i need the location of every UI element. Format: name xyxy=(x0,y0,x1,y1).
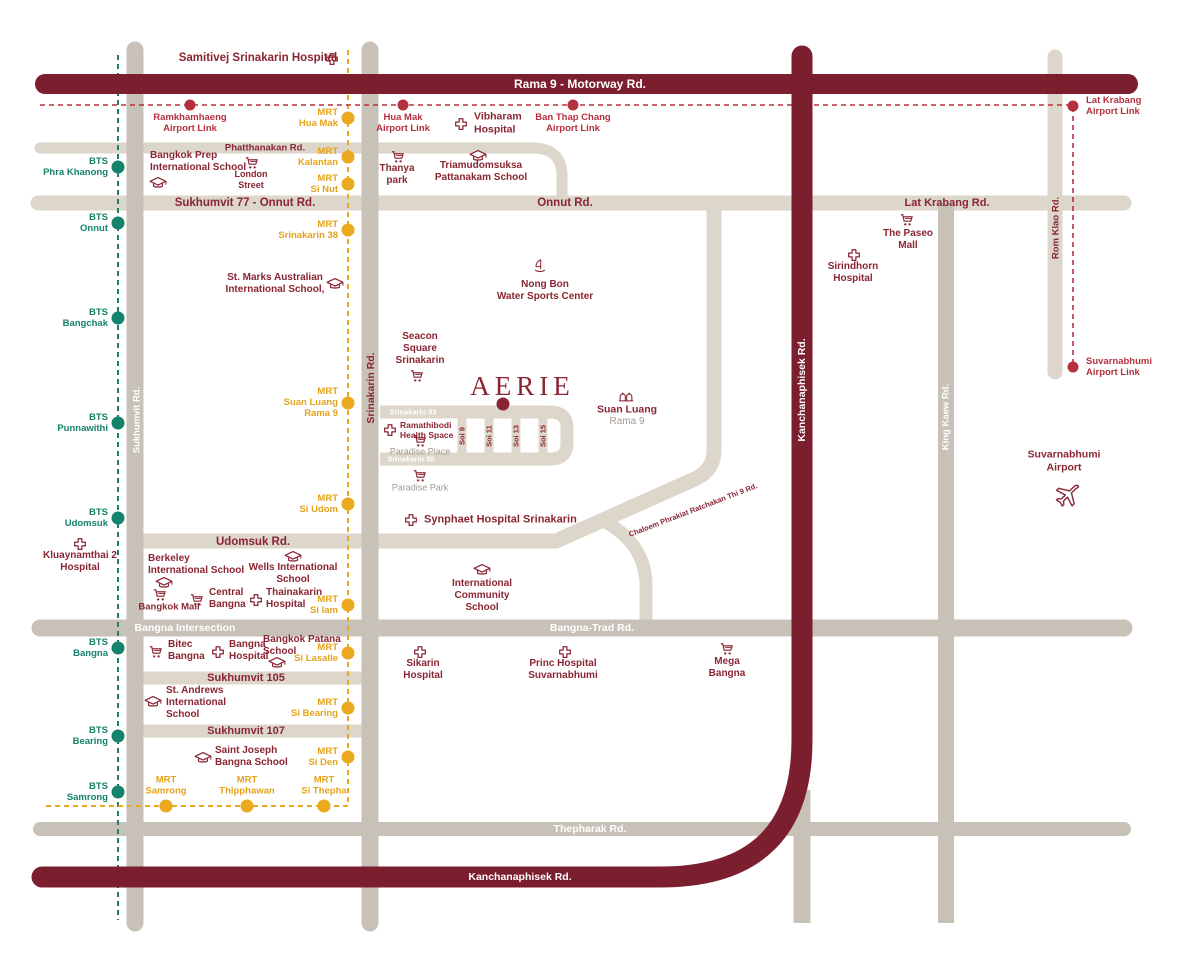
airport_link-station-label-ban-thap-chang: Ban Thap Chang Airport Link xyxy=(535,112,610,134)
aerie-location-map: Rama 9 - Motorway Rd.Phatthanakan Rd.Suk… xyxy=(0,0,1200,975)
airport_link-station-label-suvarnabhumi: Suvarnabhumi Airport Link xyxy=(1086,356,1152,378)
international-community-school: International Community School xyxy=(452,578,512,614)
airport_link-station-dot-ramkhamhaeng xyxy=(185,100,196,111)
international-community-school--grad-cap-icon xyxy=(473,564,491,577)
suvarnabhumi-airport: Suvarnabhumi Airport xyxy=(1028,448,1101,473)
st-andrews-international-school: St. Andrews International School xyxy=(166,685,226,721)
mrt-station-label-suan-luang-rama-9: MRT Suan Luang Rama 9 xyxy=(284,386,338,420)
road-label-king-kaew: King Kaew Rd. xyxy=(941,384,952,451)
road-label-soi-15: Soi 15 xyxy=(539,425,548,447)
bts-station-dot-onnut xyxy=(112,217,125,230)
thanya-park: Thanya park xyxy=(379,163,414,187)
mrt-station-dot-thipphawan xyxy=(241,800,254,813)
vibharam-hospital--hospital-cross-icon xyxy=(454,117,469,132)
bangkok-patana-school--grad-cap-icon xyxy=(268,657,286,670)
road-label-kanchanaphisek-vertical: Kanchanaphisek Rd. xyxy=(796,338,808,441)
road-label-srinakarin-53: Srinakarin 53 xyxy=(389,408,436,417)
saint-joseph-bangna-school: Saint Joseph Bangna School xyxy=(215,745,288,769)
road-label-sukhumvit-107: Sukhumvit 107 xyxy=(207,725,285,737)
suvarnabhumi-airport--plane-icon xyxy=(1051,483,1081,509)
mrt-station-dot-hua-mak xyxy=(342,112,355,125)
mrt-station-dot-si-thepha xyxy=(318,800,331,813)
road-label-onnut: Onnut Rd. xyxy=(537,197,593,209)
vibharam-hospital: Vibharam Hospital xyxy=(474,110,522,135)
bts-station-dot-bangchak xyxy=(112,312,125,325)
mrt-station-label-si-den: MRT Si Den xyxy=(308,746,338,768)
bangkok-prep-international-school: Bangkok Prep International School xyxy=(150,150,246,174)
nong-bon-water-sports-center--windsurf-icon xyxy=(533,258,547,274)
road-label-kanchanaphisek-south: Kanchanaphisek Rd. xyxy=(468,871,571,883)
central-bangna--cart-icon xyxy=(190,594,204,607)
mrt-station-dot-srinakarin-38 xyxy=(342,224,355,237)
mega-bangna: Mega Bangna xyxy=(709,656,746,680)
the-paseo-mall--cart-icon xyxy=(900,214,914,227)
road-label-sukhumvit-rd: Sukhumvit Rd. xyxy=(132,387,143,454)
mrt-station-dot-si-iam xyxy=(342,599,355,612)
road-label-bangna-intersection: Bangna Intersection xyxy=(135,622,236,634)
paradise-place--cart-icon xyxy=(413,435,427,448)
central-bangna: Central Bangna xyxy=(209,587,246,611)
seacon-square-srinakarin: Seacon Square Srinakarin xyxy=(396,331,445,367)
samitivej-srinakarin-hospital: Samitivej Srinakarin Hospital xyxy=(179,52,338,66)
bitec-bangna: Bitec Bangna xyxy=(168,639,205,663)
bts-station-label-bangchak: BTS Bangchak xyxy=(63,307,108,329)
label-layer: Rama 9 - Motorway Rd.Phatthanakan Rd.Suk… xyxy=(0,0,1200,975)
synphaet-hospital-srinakarin--hospital-cross-icon xyxy=(404,513,419,528)
bitec-bangna--cart-icon xyxy=(149,646,163,659)
the-paseo-mall: The Paseo Mall xyxy=(883,228,933,252)
airport_link-station-label-lat-krabang: Lat Krabang Airport Link xyxy=(1086,95,1141,117)
bts-station-dot-bangna xyxy=(112,642,125,655)
london-street--cart-icon xyxy=(245,157,259,170)
bangkok-mall--cart-icon xyxy=(153,589,167,602)
bts-station-dot-udomsuk xyxy=(112,512,125,525)
airport_link-station-label-hua-mak: Hua Mak Airport Link xyxy=(376,112,430,134)
airport_link-station-dot-ban-thap-chang xyxy=(568,100,579,111)
ramathibodi-health-space--hospital-cross-icon xyxy=(383,423,398,438)
road-label-rom-klao: Rom Klao Rd. xyxy=(1051,197,1062,259)
bangna-hospital--hospital-cross-icon xyxy=(211,645,226,660)
st-andrews-international-school--grad-cap-icon xyxy=(144,696,162,709)
mrt-station-label-si-nut: MRT Si Nut xyxy=(311,173,338,195)
suan-luang--park-icon xyxy=(618,390,635,403)
bangkok-patana-school: Bangkok Patana School xyxy=(263,634,341,658)
mrt-station-label-si-udom: MRT Si Udom xyxy=(299,493,338,515)
road-label-srinakarin-rd: Srinakarin Rd. xyxy=(365,352,377,423)
mega-bangna--cart-icon xyxy=(720,643,734,656)
road-label-udomsuk: Udomsuk Rd. xyxy=(216,536,290,548)
thainakarin-hospital: Thainakarin Hospital xyxy=(266,587,322,611)
mrt-station-label-hua-mak: MRT Hua Mak xyxy=(299,107,338,129)
thainakarin-hospital--hospital-cross-icon xyxy=(249,593,264,608)
mrt-station-dot-kalantan xyxy=(342,151,355,164)
bts-station-label-punnawithi: BTS Punnawithi xyxy=(57,412,108,434)
paradise-park: Paradise Park xyxy=(392,483,449,494)
mrt-station-dot-si-nut xyxy=(342,178,355,191)
mrt-station-dot-si-den xyxy=(342,751,355,764)
mrt-station-label-srinakarin-38: MRT Srinakarin 38 xyxy=(278,219,338,241)
princ-hospital-suvarnabhumi: Princ Hospital Suvarnabhumi xyxy=(528,658,597,682)
bts-station-label-phra-khanong: BTS Phra Khanong xyxy=(43,156,108,178)
bts-station-label-samrong: BTS Samrong xyxy=(67,781,108,803)
mrt-station-dot-samrong xyxy=(160,800,173,813)
suan-luang: Suan Luang xyxy=(597,404,657,417)
seacon-square-srinakarin--cart-icon xyxy=(410,370,424,383)
saint-joseph-bangna-school--grad-cap-icon xyxy=(194,752,212,765)
road-label-soi-9: Soi 9 xyxy=(458,427,467,445)
paradise-place: Paradise Place xyxy=(390,447,451,458)
road-label-soi-11: Soi 11 xyxy=(485,425,494,447)
airport_link-station-dot-suvarnabhumi xyxy=(1068,362,1079,373)
mrt-station-label-si-bearing: MRT Si Bearing xyxy=(291,697,338,719)
bts-station-dot-samrong xyxy=(112,786,125,799)
mrt-station-dot-si-bearing xyxy=(342,702,355,715)
road-label-chaloem-phrakiat: Chaloem Phrakiat Ratchakan Thi 9 Rd. xyxy=(627,481,758,539)
bangkok-prep-international-school--grad-cap-icon xyxy=(149,177,167,190)
road-label-lat-krabang: Lat Krabang Rd. xyxy=(905,197,990,209)
thanya-park--cart-icon xyxy=(391,151,405,164)
sikarin-hospital: Sikarin Hospital xyxy=(403,658,442,682)
bts-station-dot-phra-khanong xyxy=(112,161,125,174)
airport_link-station-label-ramkhamhaeng: Ramkhamhaeng Airport Link xyxy=(153,112,226,134)
berkeley-international-school: Berkeley International School xyxy=(148,553,244,577)
nong-bon-water-sports-center: Nong Bon Water Sports Center xyxy=(497,279,593,303)
paradise-park--cart-icon xyxy=(413,470,427,483)
mrt-station-dot-suan-luang-rama-9 xyxy=(342,397,355,410)
mrt-station-dot-si-udom xyxy=(342,498,355,511)
road-label-bangna-trad: Bangna-Trad Rd. xyxy=(550,622,634,634)
road-label-rama9: Rama 9 - Motorway Rd. xyxy=(514,77,646,91)
bts-station-dot-punnawithi xyxy=(112,417,125,430)
st-marks-australian-international-school: St. Marks Australian International Schoo… xyxy=(226,272,325,296)
london-street: London Street xyxy=(235,169,268,191)
wells-international-school: Wells International School xyxy=(249,562,338,586)
bts-station-label-bearing: BTS Bearing xyxy=(73,725,108,747)
bts-station-label-bangna: BTS Bangna xyxy=(73,637,108,659)
bts-station-label-onnut: BTS Onnut xyxy=(80,212,108,234)
mrt-station-label-thipphawan: MRT Thipphawan xyxy=(219,775,274,797)
airport_link-station-dot-lat-krabang xyxy=(1068,101,1079,112)
mrt-station-dot-si-lasalle xyxy=(342,647,355,660)
mrt-station-label-si-thepha: MRT Si Thepha xyxy=(301,775,346,797)
aerie-logo: AERIE xyxy=(465,370,574,402)
bts-station-label-udomsuk: BTS Udomsuk xyxy=(65,507,108,529)
mrt-station-label-kalantan: MRT Kalantan xyxy=(298,146,338,168)
mrt-station-label-samrong: MRT Samrong xyxy=(145,775,186,797)
road-label-sukhumvit-105: Sukhumvit 105 xyxy=(207,672,285,684)
suan-luang-rama-9-sub: Rama 9 xyxy=(609,416,644,428)
road-label-thepharak: Thepharak Rd. xyxy=(554,823,627,835)
airport_link-station-dot-hua-mak xyxy=(398,100,409,111)
st-marks-australian-international-school--grad-cap-icon xyxy=(326,278,344,291)
road-label-sukhumvit77: Sukhumvit 77 - Onnut Rd. xyxy=(175,197,316,209)
sirindhorn-hospital: Sirindhorn Hospital xyxy=(828,261,879,285)
kluaynamthai-2-hospital: Kluaynamthai 2 Hospital xyxy=(43,550,117,574)
bts-station-dot-bearing xyxy=(112,730,125,743)
synphaet-hospital-srinakarin: Synphaet Hospital Srinakarin xyxy=(424,513,577,526)
road-label-soi-13: Soi 13 xyxy=(512,425,521,447)
triamudomsuksa-pattanakam-school: Triamudomsuksa Pattanakam School xyxy=(435,160,527,184)
